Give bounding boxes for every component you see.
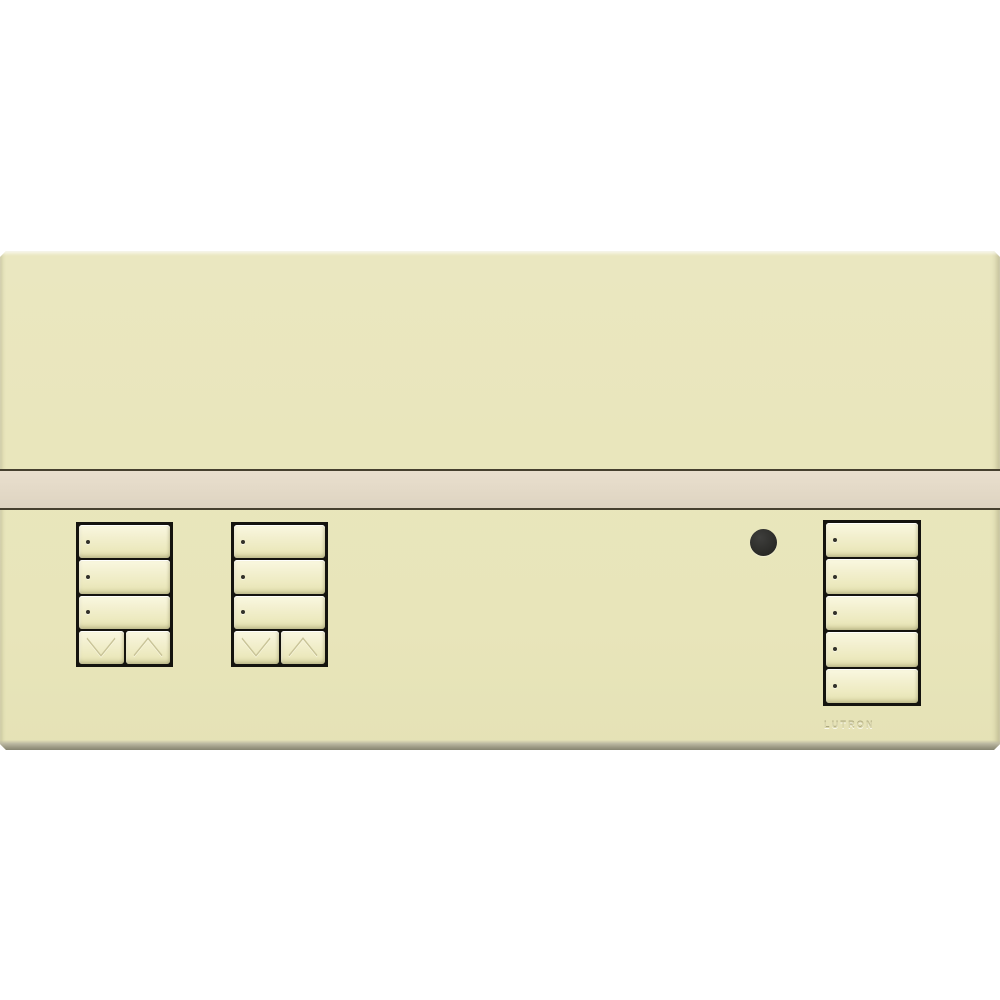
brand-logo: LUTRON — [824, 720, 875, 730]
keypad-right-button-3[interactable] — [826, 596, 918, 630]
plate-bottom-edge — [0, 740, 1000, 750]
led-indicator — [833, 647, 837, 651]
keypad-left-2-raise-button[interactable] — [281, 631, 326, 664]
keypad-left-2-lower-button[interactable] — [234, 631, 279, 664]
accent-band — [0, 469, 1000, 510]
led-indicator — [833, 575, 837, 579]
keypad-left-2-raise-lower-row — [234, 631, 325, 664]
keypad-left-2-button-3[interactable] — [234, 596, 325, 629]
chevron-down-icon — [240, 635, 272, 659]
keypad-left-2-button-1[interactable] — [234, 525, 325, 558]
chevron-up-icon — [132, 635, 164, 659]
led-indicator — [833, 538, 837, 542]
led-indicator — [86, 540, 90, 544]
ir-receiver-dot — [750, 529, 777, 556]
led-indicator — [833, 684, 837, 688]
keypad-right-button-5[interactable] — [826, 669, 918, 703]
led-indicator — [241, 575, 245, 579]
keypad-left-2-button-2[interactable] — [234, 560, 325, 593]
product-photo-canvas: LUTRON — [0, 0, 1000, 1000]
keypad-left-1-raise-button[interactable] — [126, 631, 171, 664]
keypad-left-1 — [76, 522, 173, 667]
keypad-left-2 — [231, 522, 328, 667]
keypad-faceplate: LUTRON — [0, 251, 1000, 750]
keypad-right — [823, 520, 921, 706]
led-indicator — [241, 540, 245, 544]
led-indicator — [833, 611, 837, 615]
keypad-left-1-button-2[interactable] — [79, 560, 170, 593]
keypad-left-1-button-3[interactable] — [79, 596, 170, 629]
led-indicator — [86, 575, 90, 579]
chevron-up-icon — [287, 635, 319, 659]
keypad-right-button-1[interactable] — [826, 523, 918, 557]
led-indicator — [241, 610, 245, 614]
led-indicator — [86, 610, 90, 614]
keypad-left-1-button-1[interactable] — [79, 525, 170, 558]
keypad-left-1-lower-button[interactable] — [79, 631, 124, 664]
keypad-left-1-raise-lower-row — [79, 631, 170, 664]
keypad-right-button-4[interactable] — [826, 632, 918, 666]
keypad-right-button-2[interactable] — [826, 559, 918, 593]
chevron-down-icon — [85, 635, 117, 659]
